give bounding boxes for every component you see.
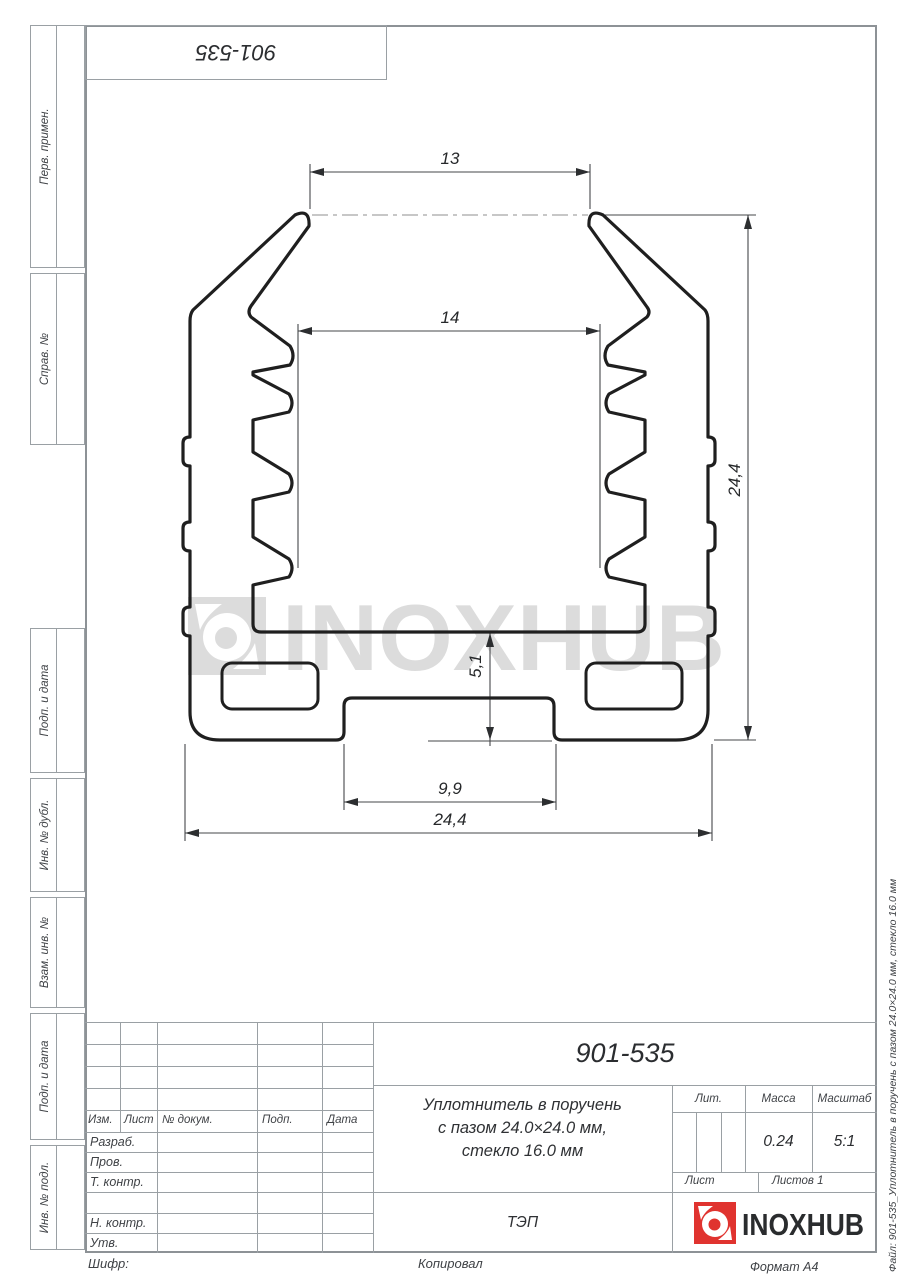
dim-inner-width: 14 (441, 308, 460, 327)
inoxhub-logo-text: INOXHUB (742, 1207, 864, 1242)
strip-label-sprav-no: Справ. № (32, 273, 57, 445)
grid-line (85, 1172, 373, 1173)
logo-cell: INOXHUB (672, 1193, 877, 1253)
grid-line (322, 1022, 323, 1253)
masshtab-value: 5:1 (812, 1112, 877, 1172)
watermark-logo-ring-center (215, 627, 237, 649)
row-tkontr: Т. контр. (90, 1175, 144, 1189)
footer-kopiroval: Копировал (418, 1256, 483, 1271)
part-title-line1: Уплотнитель в поручень (373, 1094, 672, 1117)
inoxhub-logo-ring-center (709, 1219, 721, 1231)
row-utv: Утв. (90, 1236, 118, 1250)
row-nkontr: Н. контр. (90, 1216, 146, 1230)
listov-label: Листов 1 (772, 1175, 823, 1187)
strip-box-vzam-field (56, 897, 85, 1008)
list-label: Лист (685, 1175, 715, 1187)
grid-line (85, 1066, 373, 1067)
dim-height: 24,4 (725, 463, 744, 497)
strip-box-invpodl-field (56, 1145, 85, 1250)
inoxhub-logo: INOXHUB (672, 1193, 877, 1253)
grid-line (257, 1022, 258, 1253)
strip-label-podp-data-2: Подп. и дата (32, 1013, 57, 1140)
grid-line (696, 1112, 697, 1172)
strip-label-inv-dubl: Инв. № дубл. (32, 778, 57, 892)
footer-shifr: Шифр: (88, 1256, 129, 1271)
grid-line (721, 1112, 722, 1172)
grid-line (85, 1044, 373, 1045)
grid-line (85, 1213, 373, 1214)
dim-total-width: 24,4 (432, 810, 466, 829)
grid-line (85, 1192, 373, 1193)
watermark-text: INOXHUB (282, 585, 725, 690)
strip-box-podp1-field (56, 628, 85, 773)
row-razrab: Разраб. (90, 1135, 135, 1149)
col-data: Дата (327, 1114, 357, 1126)
strip-box-sprav-field (56, 273, 85, 445)
row-prov: Пров. (90, 1155, 123, 1169)
dim-groove-width: 9,9 (438, 779, 462, 798)
grid-line (120, 1022, 121, 1132)
drawing-canvas: INOXHUB (85, 25, 877, 1022)
strip-box-perv-field (56, 25, 85, 268)
masshtab-label: Масштаб (812, 1085, 877, 1112)
drawing-sheet: Перв. примен. Справ. № Подп. и дата Инв.… (0, 0, 905, 1280)
strip-label-podp-data-1: Подп. и дата (32, 628, 57, 773)
grid-line (758, 1172, 759, 1192)
strip-box-podp2-field (56, 1013, 85, 1140)
strip-box-invdubl-field (56, 778, 85, 892)
col-izm: Изм. (88, 1114, 113, 1126)
dim-base-depth: 5,1 (466, 654, 485, 678)
massa-label: Масса (745, 1085, 812, 1112)
col-podp: Подп. (262, 1114, 293, 1126)
lit-label: Лит. (672, 1085, 745, 1112)
grid-line (672, 1172, 877, 1173)
grid-line (85, 1233, 373, 1234)
strip-label-perv-primen: Перв. примен. (32, 25, 57, 268)
tep-cell: ТЭП (373, 1192, 672, 1253)
titleblock-doc-number: 901-535 (373, 1022, 877, 1085)
massa-value: 0.24 (745, 1112, 812, 1172)
strip-label-vzam-inv: Взам. инв. № (32, 897, 57, 1008)
strip-label-inv-podl: Инв. № подл. (32, 1145, 57, 1250)
grid-line (157, 1022, 158, 1253)
part-title-line2: с пазом 24.0×24.0 мм, (373, 1117, 672, 1140)
grid-line (85, 1152, 373, 1153)
part-title: Уплотнитель в поручень с пазом 24.0×24.0… (373, 1094, 672, 1163)
col-list: Лист (124, 1114, 154, 1126)
grid-line (85, 1110, 373, 1111)
col-ndocum: № докум. (162, 1114, 213, 1126)
file-label-vertical: Файл: 901-535_Уплотнитель в поручень с п… (883, 878, 903, 1272)
dim-top-width: 13 (441, 149, 460, 168)
footer-format: Формат A4 (750, 1260, 818, 1274)
grid-line (85, 1088, 373, 1089)
grid-line (85, 1132, 373, 1133)
part-title-line3: стекло 16.0 мм (373, 1140, 672, 1163)
